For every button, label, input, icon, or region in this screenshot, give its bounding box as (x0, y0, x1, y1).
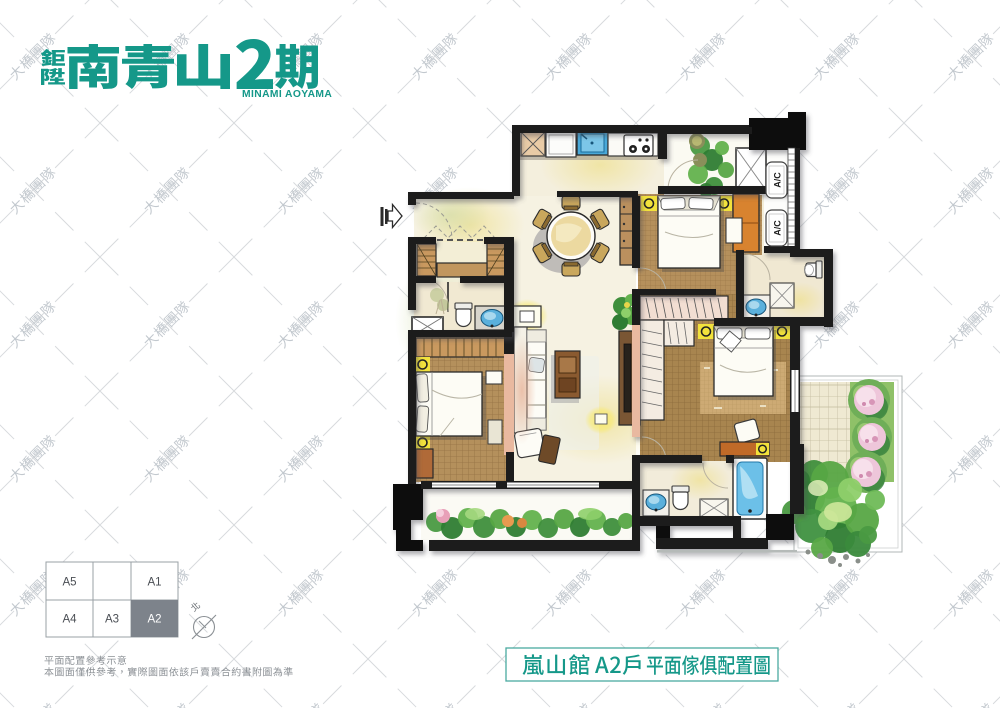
svg-text:A2: A2 (147, 614, 161, 626)
svg-text:A5: A5 (62, 577, 76, 589)
svg-text:MINAMI AOYAMA: MINAMI AOYAMA (242, 89, 332, 100)
svg-text:A/C: A/C (773, 172, 783, 188)
svg-text:A4: A4 (62, 614, 77, 626)
svg-text:A1: A1 (147, 577, 161, 589)
svg-text:A3: A3 (105, 614, 119, 626)
svg-text:A/C: A/C (773, 220, 783, 236)
